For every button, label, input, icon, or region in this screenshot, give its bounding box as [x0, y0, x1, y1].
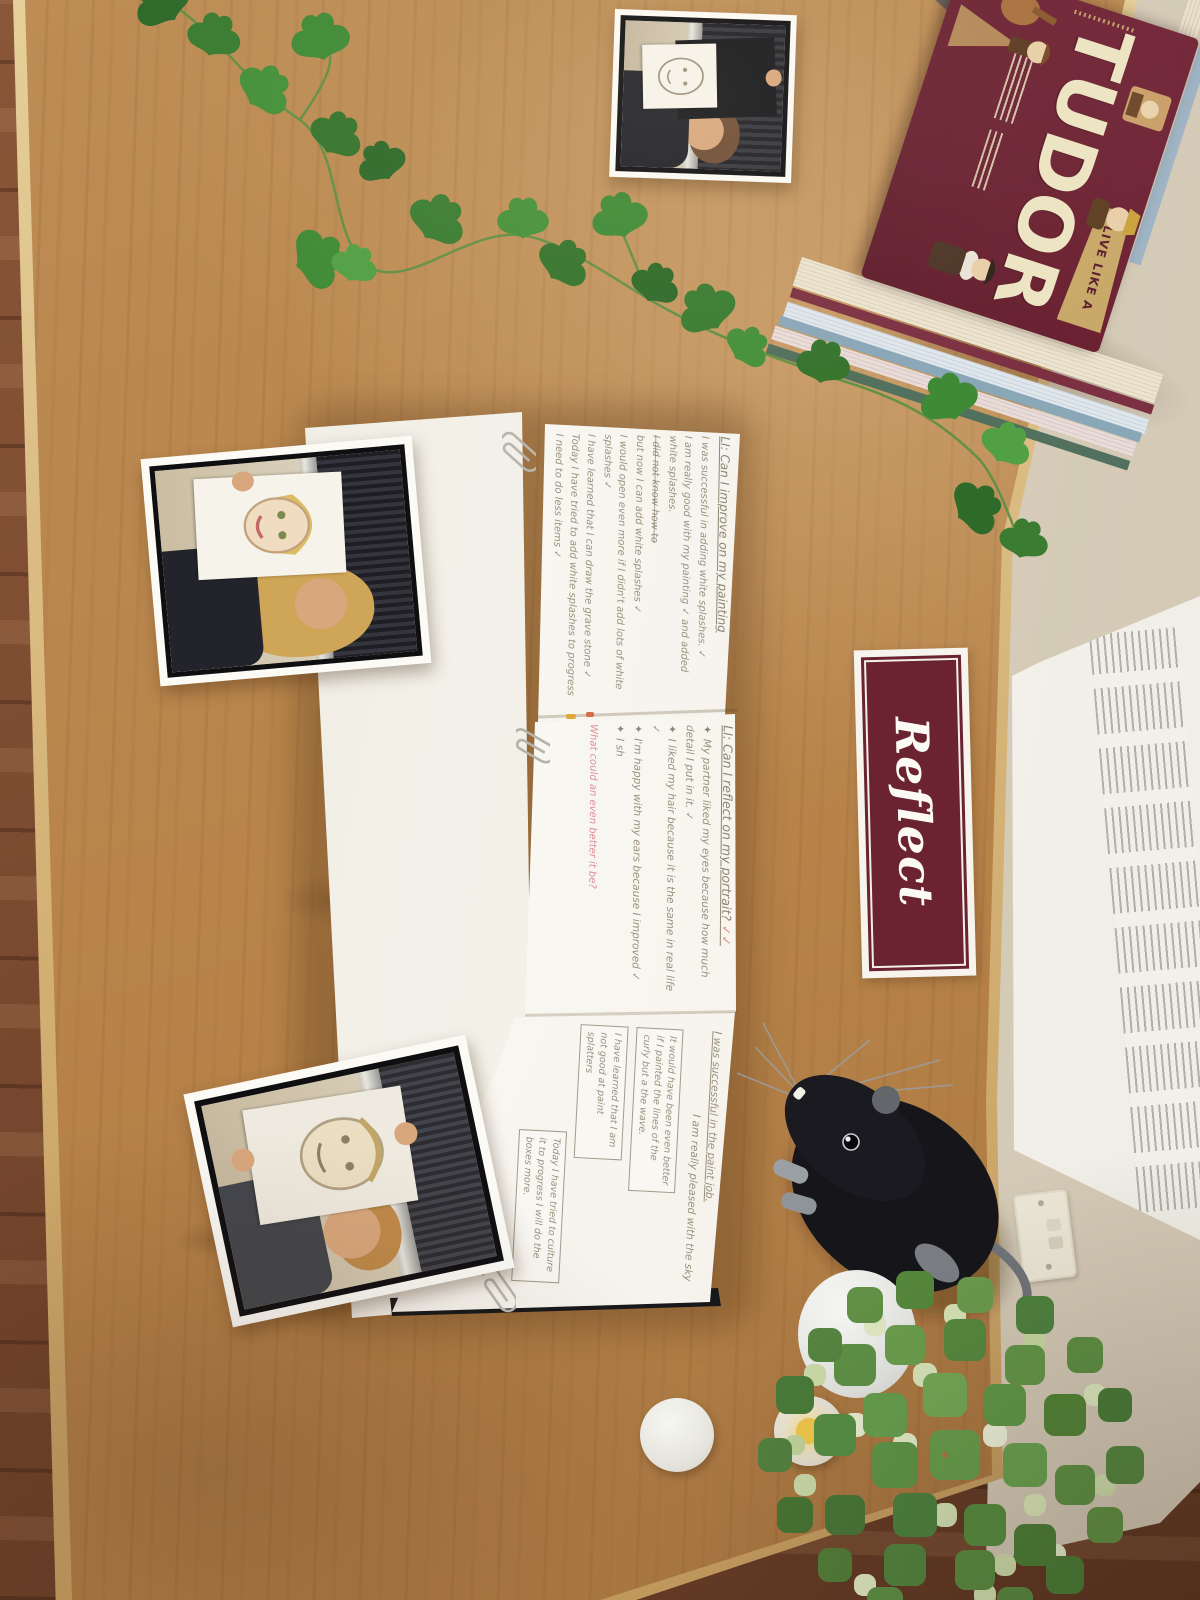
white-plant-pot [798, 1270, 916, 1398]
handwriting-line: I am really good with my painting ✓ and … [660, 435, 696, 701]
page3-box-row: I have learned that I am not good at pai… [566, 1024, 628, 1301]
teacher-ticks: ✓✓ [719, 925, 734, 946]
star-bullet-icon: ✦ [629, 724, 646, 733]
photo-frame [149, 444, 423, 678]
led-flame [796, 1418, 822, 1444]
bullet-text: I'm happy with my ears because I improve… [629, 738, 643, 981]
child-photo [201, 1052, 497, 1309]
paint-speck [586, 712, 594, 717]
portrait-sketch [194, 472, 347, 581]
reflect-sign-label: Reflect [861, 655, 967, 969]
handwriting-page-1: LI: Can I improve on my painting I was s… [553, 433, 733, 701]
photo-frame [615, 15, 790, 177]
portrait-sketch [242, 1085, 418, 1225]
page3-box-row: Today I have tried to culture it to prog… [510, 1129, 567, 1298]
reflection-box: It would have been even better if I pain… [628, 1027, 684, 1193]
reflect-sign-card: Reflect [861, 655, 969, 972]
portrait-drawing [242, 1085, 418, 1225]
page2-title-text: LI: Can I reflect on my portrait? [719, 725, 736, 921]
bullet-text: I sh [613, 738, 625, 757]
bullet-text: I liked my hair because it is the same i… [649, 725, 678, 992]
handwriting-bullet: ✦My partner liked my eyes because how mu… [679, 725, 715, 1000]
portrait-sketch [642, 43, 717, 109]
artificial-plant-foliage [942, 1452, 948, 1458]
portrait-drawing [194, 472, 347, 581]
photo-print-top [609, 9, 797, 183]
classroom-display-table-photo: LIVE LIKE A TUDOR [0, 0, 1200, 1600]
reflection-box: Today I have tried to culture it to prog… [511, 1129, 567, 1283]
handwriting-bullet: ✦I sh [609, 724, 628, 999]
page3-box-row: It would have been even better if I pain… [622, 1027, 684, 1304]
rat-eye [843, 1134, 859, 1150]
star-bullet-icon: ✦ [698, 725, 715, 734]
child-photo [155, 450, 418, 673]
paper-clip [502, 424, 536, 482]
handwriting-bullet: ✦I'm happy with my ears because I improv… [626, 724, 645, 999]
child-photo [621, 20, 786, 171]
candle [640, 1398, 714, 1472]
photo-print-left [141, 436, 432, 687]
star-bullet-icon: ✦ [663, 725, 680, 734]
rat-eye-glint [845, 1136, 850, 1141]
page2-title: LI: Can I reflect on my portrait? ✓✓ [718, 725, 735, 1000]
rat-ear-shade [872, 1086, 900, 1114]
teacher-comment: What could an even better it be? [583, 724, 601, 999]
reflection-box: I have learned that I am not good at pai… [573, 1024, 628, 1160]
portrait-drawing [642, 43, 717, 109]
handwriting-bullet: ✦I liked my hair because it is the same … [644, 725, 680, 1000]
reflect-sign: Reflect [854, 648, 977, 979]
handwriting-line: I would open even more if I didn't add l… [595, 434, 631, 700]
star-bullet-icon: ✦ [611, 724, 628, 733]
handwriting-line: Today I have tried to add white splashes… [547, 433, 583, 699]
handwriting-line: I was successful in adding white splashe… [692, 436, 712, 701]
handwriting-page-2: LI: Can I reflect on my portrait? ✓✓ ✦My… [533, 724, 735, 1001]
bullet-text: My partner liked my eyes because how muc… [683, 725, 713, 978]
photo-frame [194, 1045, 504, 1316]
paint-speck [566, 714, 576, 719]
